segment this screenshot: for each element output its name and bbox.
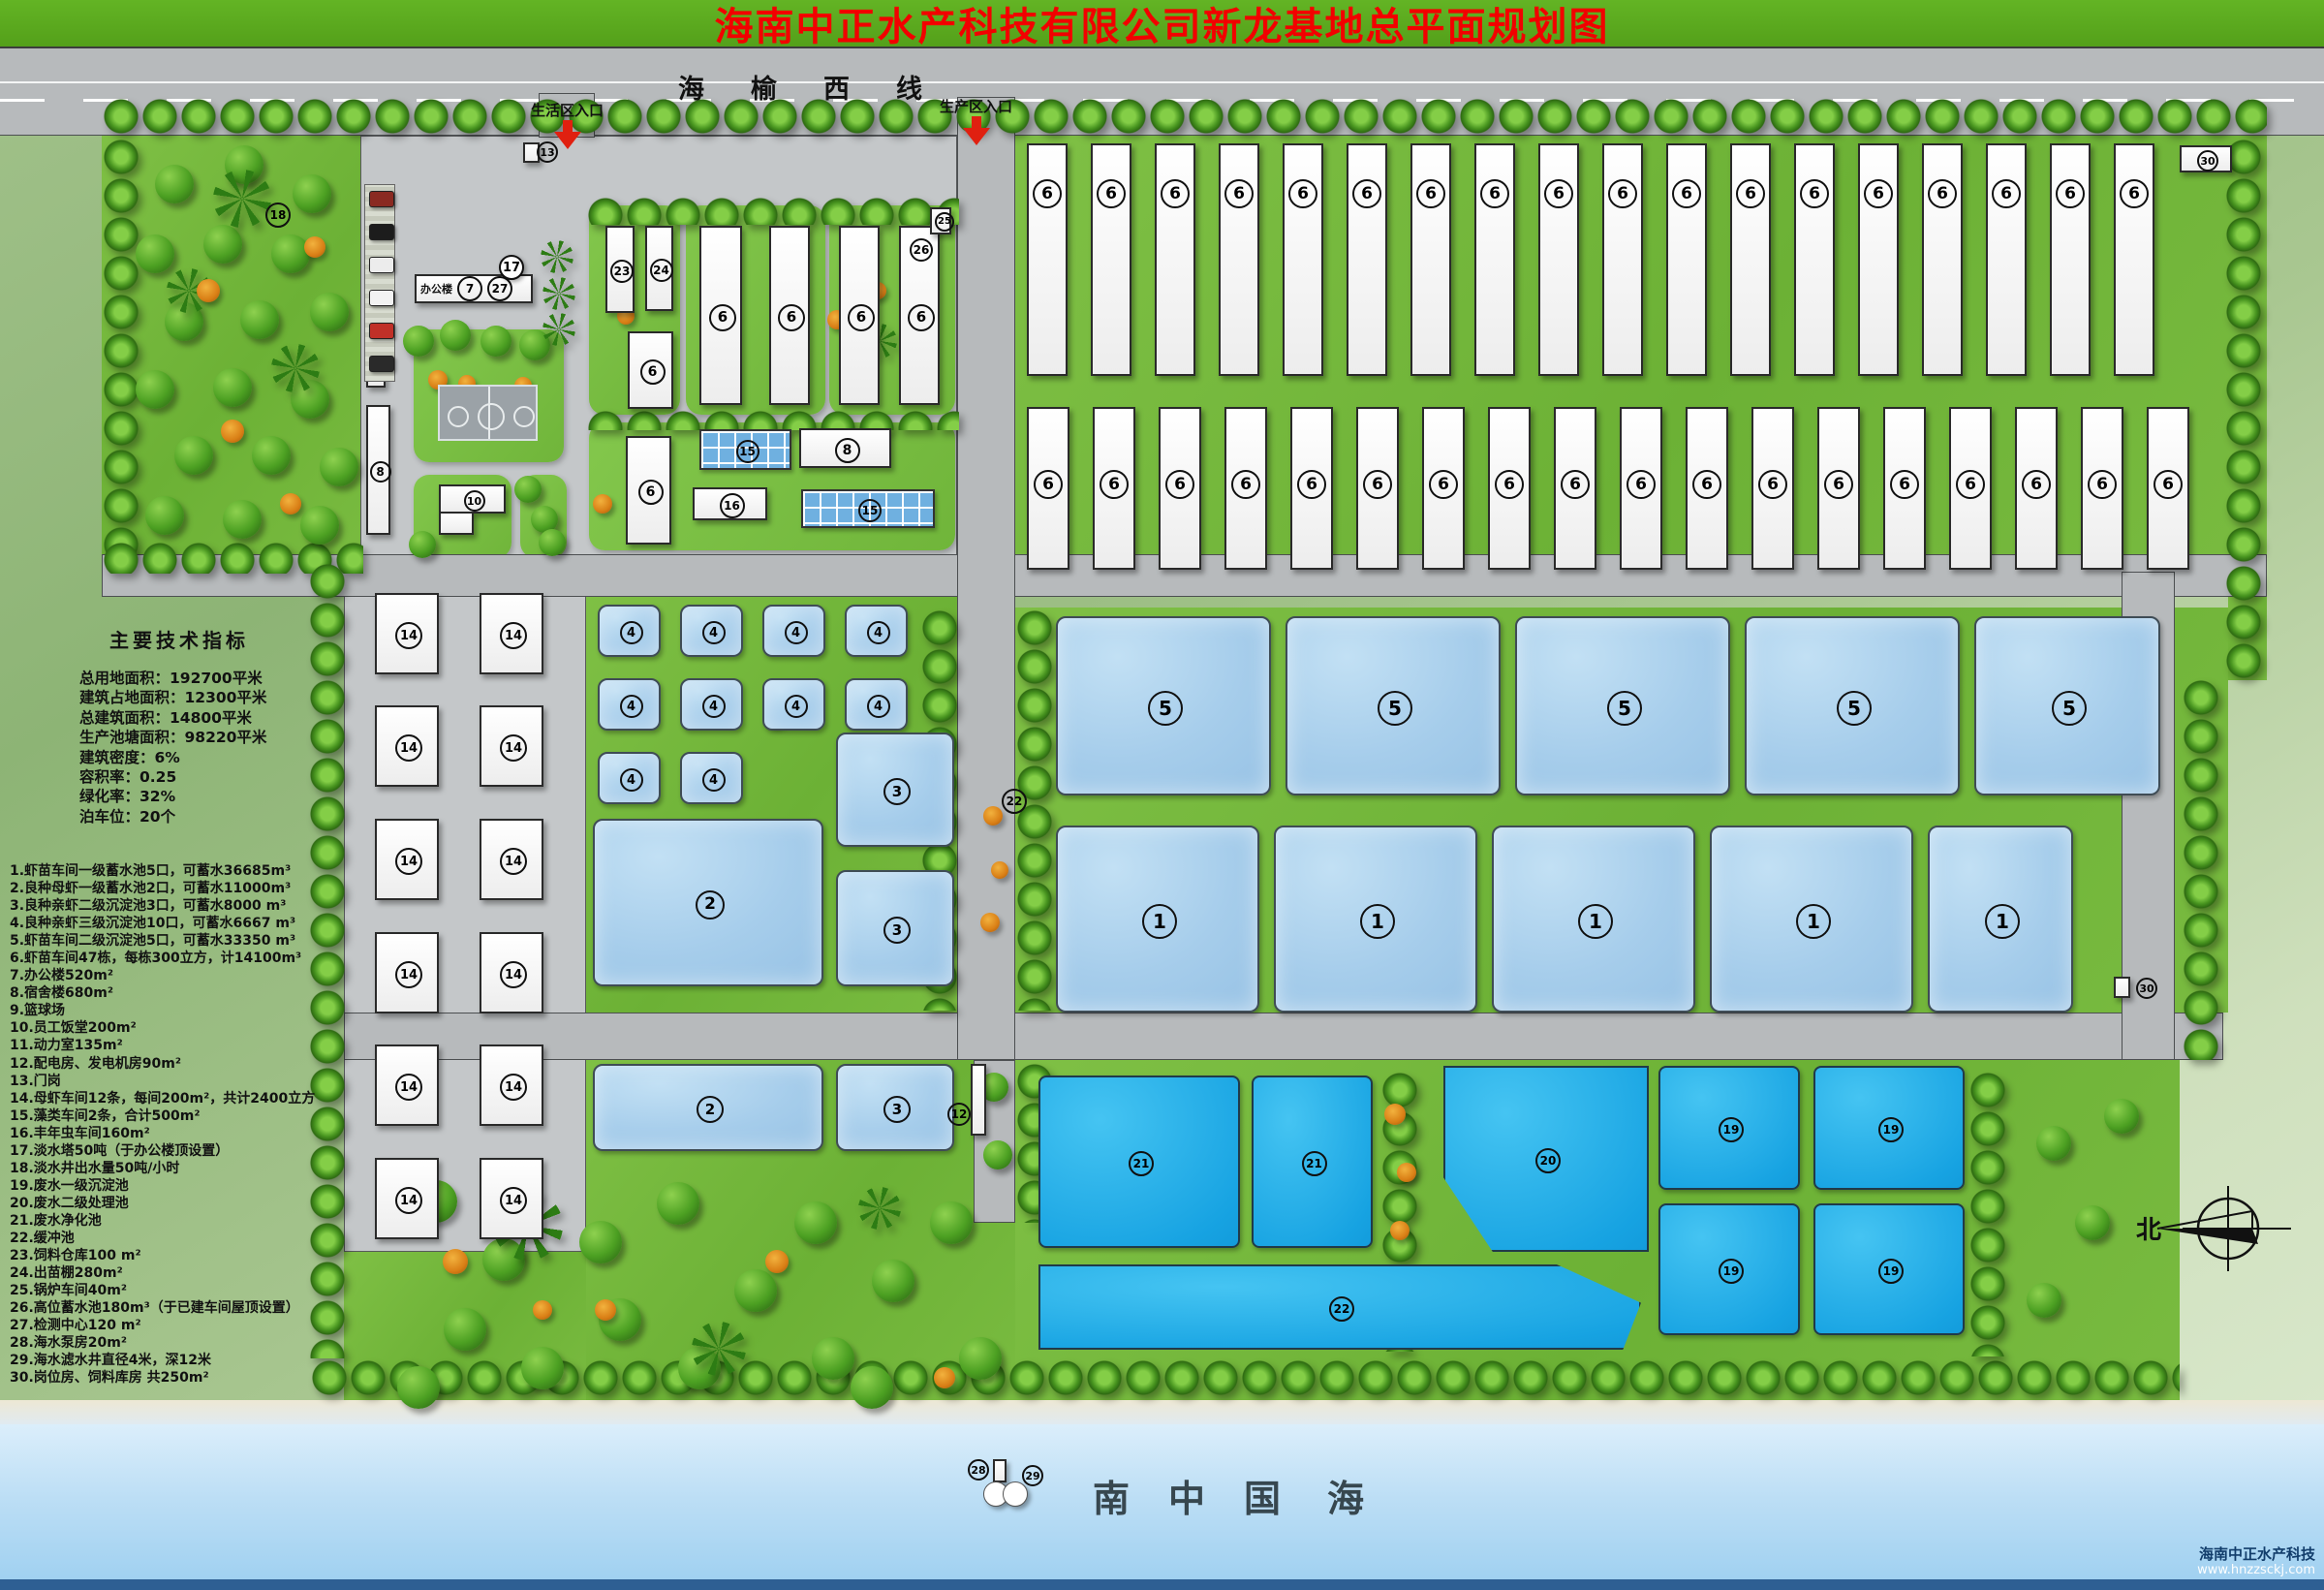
entrance-arrow-icon (563, 120, 573, 132)
parked-car (369, 290, 394, 306)
circled-label-3: 3 (883, 1096, 911, 1123)
circled-label-4: 4 (785, 621, 808, 644)
pond-22: 22 (1038, 1264, 1641, 1350)
orange-shrub (983, 806, 1003, 826)
circled-label-4: 4 (702, 621, 726, 644)
palm-tree (858, 1187, 901, 1230)
pond-5: 5 (1974, 616, 2160, 795)
hatchery-shed (1091, 143, 1131, 376)
pond-4: 4 (845, 678, 908, 731)
pond-20: 20 (1443, 1066, 1649, 1252)
hatchery-shed (2114, 143, 2154, 376)
pond-4: 4 (598, 752, 661, 804)
tree-bush (271, 234, 310, 273)
tree-bush (403, 326, 434, 357)
pond-3: 3 (836, 870, 954, 986)
circled-label-22: 22 (1329, 1296, 1354, 1322)
mother-shrimp-workshop: 14 (480, 819, 543, 900)
circled-label-28: 28 (968, 1459, 989, 1481)
tree-bush (145, 496, 184, 535)
circled-label-6: 6 (2022, 470, 2051, 499)
mother-shrimp-workshop: 14 (375, 819, 439, 900)
legend-item: 21.废水净化池 (10, 1212, 315, 1230)
building: 6 (839, 226, 880, 405)
circled-label-6: 6 (1363, 470, 1392, 499)
compass-north-icon: 北 (2136, 1184, 2296, 1273)
pond-4: 4 (762, 605, 825, 657)
court-center-circle (478, 403, 505, 430)
palm-tree (542, 313, 575, 346)
circled-label-18: 18 (265, 203, 291, 228)
building: 10 (439, 484, 506, 514)
legend-item: 24.出苗棚280m² (10, 1264, 315, 1282)
circled-label-4: 4 (620, 768, 643, 792)
legend-item: 22.缓冲池 (10, 1230, 315, 1247)
parked-car (369, 257, 394, 273)
building (439, 512, 474, 535)
pond-5: 5 (1056, 616, 1271, 795)
orange-shrub (197, 279, 220, 302)
circled-label-16: 16 (720, 493, 745, 518)
building (2114, 977, 2130, 998)
legend-item: 28.海水泵房20m² (10, 1334, 315, 1352)
tree-bush (514, 476, 542, 503)
hatchery-shed (1666, 143, 1707, 376)
circled-label-19: 19 (1719, 1117, 1744, 1142)
circled-label-6: 6 (1928, 179, 1957, 208)
circled-label-19: 19 (1878, 1259, 1904, 1284)
pond-4: 4 (680, 752, 743, 804)
orange-shrub (443, 1249, 468, 1274)
orange-shrub (304, 236, 325, 258)
building: 8 (366, 405, 390, 535)
building: 8 (799, 428, 891, 468)
building: 23 (605, 226, 635, 313)
circled-label-6: 6 (1692, 470, 1721, 499)
circled-label-23: 23 (610, 260, 634, 283)
hatchery-shed (1410, 143, 1451, 376)
circled-label-4: 4 (702, 695, 726, 718)
tree-row (310, 1356, 2180, 1400)
circled-label-14: 14 (500, 1074, 527, 1101)
legend-item: 19.废水一级沉淀池 (10, 1177, 315, 1195)
circled-label-10: 10 (464, 490, 485, 512)
building: 24 (645, 226, 673, 311)
mother-shrimp-workshop: 14 (375, 1044, 439, 1126)
mother-shrimp-workshop: 14 (375, 705, 439, 787)
pond-1: 1 (1928, 826, 2073, 1013)
tree-bush (213, 368, 252, 407)
legend-item: 6.虾苗车间47栋，每栋300立方，计14100m³ (10, 950, 315, 967)
pond-2: 2 (593, 1064, 823, 1151)
circled-label-2: 2 (696, 890, 725, 920)
circled-label-4: 4 (702, 768, 726, 792)
circled-label-26: 26 (910, 238, 933, 262)
mother-shrimp-workshop: 14 (480, 1158, 543, 1239)
court-key-circle (513, 406, 535, 427)
orange-shrub (1384, 1104, 1406, 1125)
tree-bush (293, 174, 331, 213)
building: 6 (626, 436, 671, 545)
pond-4: 4 (680, 605, 743, 657)
tree-bush (397, 1366, 440, 1409)
circled-label-5: 5 (1378, 691, 1412, 726)
svg-text:北: 北 (2136, 1216, 2161, 1245)
mother-shrimp-workshop: 14 (480, 705, 543, 787)
circled-label-2: 2 (697, 1096, 724, 1123)
legend-item: 4.良种亲虾三级沉淀池10口，可蓄水6667 m³ (10, 915, 315, 932)
circled-label-6: 6 (1800, 179, 1829, 208)
circled-label-25: 25 (935, 212, 954, 232)
tech-indicator-line: 建筑密度：6% (79, 748, 266, 767)
circled-label-6: 6 (2056, 179, 2085, 208)
circled-label-6: 6 (1672, 179, 1701, 208)
tree-bush (734, 1269, 777, 1312)
circled-label-6: 6 (1100, 470, 1129, 499)
legend-item: 7.办公楼520m² (10, 967, 315, 984)
circled-label-4: 4 (867, 695, 890, 718)
site-plan-scene: 5555511111444444444433322212120191919192… (0, 0, 2324, 1590)
title-bar: 海南中正水产科技有限公司新龙基地总平面规划图 (0, 0, 2324, 47)
hatchery-shed (1538, 143, 1579, 376)
tree-bush (240, 300, 279, 339)
legend-item: 8.宿舍楼680m² (10, 984, 315, 1002)
entrance-arrow-icon (554, 132, 581, 149)
circled-label-6: 6 (1224, 179, 1254, 208)
circled-label-1: 1 (1578, 904, 1613, 939)
mother-shrimp-workshop: 14 (480, 593, 543, 674)
circled-label-12: 12 (947, 1103, 971, 1126)
legend-list: 1.虾苗车间一级蓄水池5口，可蓄水36685m³2.良种母虾一级蓄水池2口，可蓄… (10, 862, 315, 1387)
tech-indicators-list: 总用地面积：192700平米建筑占地面积：12300平米总建筑面积：14800平… (79, 669, 266, 826)
tree-row (586, 194, 959, 225)
pond-1: 1 (1274, 826, 1477, 1013)
hatchery-shed (2050, 143, 2091, 376)
pond-3: 3 (836, 733, 954, 847)
tree-bush (320, 448, 358, 486)
circled-label-6: 6 (1561, 470, 1590, 499)
watermark-url: www.hnzzsckj.com (2112, 1563, 2315, 1577)
basketball-court (438, 385, 538, 441)
circled-label-30: 30 (2197, 150, 2218, 171)
pond-4: 4 (762, 678, 825, 731)
circled-label-6: 6 (1758, 470, 1787, 499)
circled-label-14: 14 (395, 961, 422, 988)
hatchery-shed (1986, 143, 2027, 376)
legend-item: 1.虾苗车间一级蓄水池5口，可蓄水36685m³ (10, 862, 315, 880)
map-canvas: 5555511111444444444433322212120191919192… (0, 0, 2324, 1590)
circled-label-5: 5 (1837, 691, 1872, 726)
tree-bush (579, 1221, 622, 1263)
hatchery-shed (1922, 143, 1963, 376)
legend-item: 29.海水滤水井直径4米，深12米 (10, 1352, 315, 1369)
circled-label-6: 6 (640, 359, 666, 385)
circled-label-27: 27 (487, 276, 512, 301)
circled-label-6: 6 (2088, 470, 2117, 499)
tree-bush (2075, 1205, 2110, 1240)
circled-label-5: 5 (1607, 691, 1642, 726)
pond-4: 4 (598, 605, 661, 657)
pond-5: 5 (1286, 616, 1501, 795)
circled-label-21: 21 (1129, 1151, 1154, 1176)
pond-19: 19 (1813, 1066, 1965, 1190)
circled-label-6: 6 (2154, 470, 2183, 499)
circled-label-3: 3 (883, 778, 911, 805)
tree-bush (223, 500, 262, 539)
circled-label-29: 29 (1022, 1465, 1043, 1486)
hatchery-shed (1219, 143, 1259, 376)
orange-shrub (280, 493, 301, 514)
tech-indicator-line: 生产池塘面积：98220平米 (79, 728, 266, 747)
circled-label-6: 6 (1956, 470, 1985, 499)
tree-bush (983, 1140, 1012, 1169)
circled-label-22: 22 (1002, 789, 1027, 814)
tech-indicator-line: 总用地面积：192700平米 (79, 669, 266, 688)
algae-pond-15: 15 (801, 489, 935, 528)
circled-label-4: 4 (620, 621, 643, 644)
legend-item: 17.淡水塔50吨（于办公楼顶设置） (10, 1142, 315, 1160)
legend-item: 18.淡水井出水量50吨/小时 (10, 1160, 315, 1177)
circled-label-1: 1 (1142, 904, 1177, 939)
hatchery-shed (1155, 143, 1195, 376)
circled-label-6: 6 (1495, 470, 1524, 499)
mother-shrimp-workshop: 14 (480, 1044, 543, 1126)
circled-label-21: 21 (1302, 1151, 1327, 1176)
circled-label-15: 15 (736, 440, 759, 463)
tree-bush (444, 1308, 486, 1351)
building (993, 1459, 1007, 1482)
circled-label-6: 6 (1890, 470, 1919, 499)
pond-4: 4 (845, 605, 908, 657)
tree-bush (2027, 1283, 2061, 1318)
building: 6 (628, 331, 673, 409)
legend-item: 26.高位蓄水池180m³（于已建车间屋顶设置） (10, 1299, 315, 1317)
circled-label-6: 6 (1165, 470, 1194, 499)
water-tower-label-17: 17 (499, 255, 524, 280)
filter-well (1003, 1481, 1028, 1507)
tree-bush (794, 1201, 837, 1244)
page-title: 海南中正水产科技有限公司新龙基地总平面规划图 (715, 0, 1610, 51)
palm-tree (692, 1322, 746, 1376)
mother-shrimp-workshop: 14 (480, 932, 543, 1013)
hatchery-shed (1283, 143, 1323, 376)
pond-19: 19 (1658, 1203, 1800, 1335)
pond-19: 19 (1658, 1066, 1800, 1190)
circled-label-6: 6 (1864, 179, 1893, 208)
parked-car (369, 356, 394, 372)
circled-label-14: 14 (500, 622, 527, 649)
palm-tree (542, 277, 575, 310)
legend-item: 27.检测中心120 m² (10, 1317, 315, 1334)
parked-car (369, 191, 394, 207)
tree-bush (959, 1337, 1002, 1380)
circled-label-14: 14 (500, 961, 527, 988)
pond-21: 21 (1252, 1076, 1373, 1248)
orange-shrub (593, 494, 612, 514)
tech-indicator-line: 容积率：0.25 (79, 767, 266, 787)
legend-item: 13.门岗 (10, 1073, 315, 1090)
legend-item: 23.饲料仓库100 m² (10, 1247, 315, 1264)
tree-bush (136, 234, 174, 273)
watermark-company: 海南中正水产科技 (2112, 1546, 2315, 1563)
tree-bush (930, 1201, 973, 1244)
legend-item: 3.良种亲虾二级沉淀池3口，可蓄水8000 m³ (10, 897, 315, 915)
orange-shrub (980, 913, 1000, 932)
office-label: 办公楼 (420, 281, 452, 296)
tree-row (2224, 138, 2267, 680)
circled-label-14: 14 (395, 622, 422, 649)
circled-label-6: 6 (1627, 470, 1656, 499)
legend-item: 20.废水二级处理池 (10, 1195, 315, 1212)
building: 16 (693, 487, 767, 520)
circled-label-6: 6 (1736, 179, 1765, 208)
tree-row (1968, 1071, 2005, 1356)
life-area-entrance: 生活区入口 (531, 100, 604, 149)
circled-label-30: 30 (2136, 978, 2157, 999)
tree-bush (2104, 1099, 2139, 1134)
circled-label-5: 5 (2052, 691, 2087, 726)
circled-label-6: 6 (1288, 179, 1317, 208)
palm-tree (213, 170, 271, 228)
production-area-entrance: 生产区入口 (940, 96, 1012, 145)
pond-1: 1 (1056, 826, 1259, 1013)
tree-row (2182, 678, 2224, 1060)
orange-shrub (533, 1300, 552, 1320)
legend-item: 16.丰年虫车间160m² (10, 1125, 315, 1142)
circled-label-6: 6 (1608, 179, 1637, 208)
circled-label-6: 6 (1352, 179, 1381, 208)
entrance-arrow-icon (972, 116, 981, 128)
tree-bush (539, 529, 566, 556)
circled-label-6: 6 (1429, 470, 1458, 499)
mother-shrimp-workshop: 14 (375, 1158, 439, 1239)
circled-label-1: 1 (1985, 904, 2020, 939)
tech-indicator-line: 建筑占地面积：12300平米 (79, 688, 266, 707)
mother-shrimp-workshop: 14 (375, 593, 439, 674)
algae-pond-15: 15 (699, 429, 791, 470)
hatchery-shed (1858, 143, 1899, 376)
circled-label-6: 6 (1992, 179, 2021, 208)
tree-bush (300, 506, 339, 545)
pond-21: 21 (1038, 1076, 1240, 1248)
circled-label-8: 8 (370, 461, 391, 483)
hatchery-shed (1474, 143, 1515, 376)
circled-label-6: 6 (1824, 470, 1853, 499)
palm-tree (541, 240, 573, 273)
circled-label-4: 4 (867, 621, 890, 644)
tree-bush (409, 531, 436, 558)
legend-item: 10.员工饭堂200m² (10, 1019, 315, 1037)
circled-label-6: 6 (778, 304, 805, 331)
hatchery-shed (1794, 143, 1835, 376)
legend-item: 9.篮球场 (10, 1002, 315, 1019)
circled-label-6: 6 (2120, 179, 2149, 208)
legend-item: 14.母虾车间12条，每间200m²，共计2400立方 (10, 1090, 315, 1107)
parked-car (369, 323, 394, 339)
hatchery-shed (1602, 143, 1643, 376)
orange-shrub (221, 420, 244, 443)
palm-tree (271, 344, 320, 392)
circled-label-5: 5 (1148, 691, 1183, 726)
circled-label-6: 6 (1161, 179, 1190, 208)
legend-item: 12.配电房、发电机房90m² (10, 1055, 315, 1073)
pond-3: 3 (836, 1064, 954, 1151)
tech-indicators-header: 主要技术指标 (109, 625, 249, 653)
pond-4: 4 (598, 678, 661, 731)
tree-bush (136, 370, 174, 409)
circled-label-6: 6 (1033, 179, 1062, 208)
tree-bush (155, 165, 194, 203)
legend-item: 2.良种母虾一级蓄水池2口，可蓄水11000m³ (10, 880, 315, 897)
entrance-arrow-icon (963, 128, 990, 145)
hatchery-shed (1027, 143, 1068, 376)
orange-shrub (1397, 1163, 1416, 1182)
mother-shrimp-workshop: 14 (375, 932, 439, 1013)
tree-row (102, 138, 142, 564)
circled-label-20: 20 (1535, 1148, 1561, 1173)
orange-shrub (765, 1250, 789, 1273)
circled-label-6: 6 (848, 304, 875, 331)
circled-label-6: 6 (908, 304, 935, 331)
legend-item: 5.虾苗车间二级沉淀池5口，可蓄水33350 m³ (10, 932, 315, 950)
tree-bush (310, 293, 349, 331)
parked-car (369, 224, 394, 240)
legend-item: 30.岗位房、饲料库房 共250m² (10, 1369, 315, 1387)
building: 30 (2180, 145, 2232, 172)
circled-label-6: 6 (1480, 179, 1509, 208)
watermark: 海南中正水产科技 www.hnzzsckj.com (2112, 1546, 2315, 1577)
tech-indicator-line: 绿化率：32% (79, 787, 266, 806)
circled-label-6: 6 (1097, 179, 1126, 208)
circled-label-19: 19 (1719, 1259, 1744, 1284)
circled-label-7: 7 (457, 276, 482, 301)
tree-row (102, 95, 2267, 138)
entrance-label: 生活区入口 (531, 100, 604, 120)
court-key-circle (448, 406, 469, 427)
legend-item: 11.动力室135m² (10, 1037, 315, 1054)
tree-bush (872, 1260, 914, 1302)
hatchery-shed (1730, 143, 1771, 376)
pond-2: 2 (593, 819, 823, 986)
circled-label-6: 6 (1416, 179, 1445, 208)
circled-label-14: 14 (395, 734, 422, 762)
circled-label-6: 6 (638, 480, 664, 505)
tree-bush (2036, 1126, 2071, 1161)
orange-shrub (991, 861, 1008, 879)
road-name: 海榆西线 (678, 68, 969, 106)
circled-label-3: 3 (883, 917, 911, 944)
circled-label-8: 8 (835, 438, 860, 463)
legend-item: 25.锅炉车间40m² (10, 1282, 315, 1299)
hatchery-shed (1347, 143, 1387, 376)
building: 6 (699, 226, 742, 405)
building: 6 (769, 226, 810, 405)
circled-label-14: 14 (500, 848, 527, 875)
circled-label-14: 14 (500, 1187, 527, 1214)
circled-label-6: 6 (1297, 470, 1326, 499)
tree-bush (440, 320, 471, 351)
pond-5: 5 (1745, 616, 1960, 795)
circled-label-1: 1 (1360, 904, 1395, 939)
circled-label-14: 14 (395, 1074, 422, 1101)
tree-row (586, 407, 959, 430)
internal-road (344, 1013, 2223, 1060)
tree-bush (657, 1182, 699, 1225)
tree-bush (252, 436, 291, 475)
tree-bush (480, 326, 511, 357)
pond-1: 1 (1710, 826, 1913, 1013)
parking-strip (364, 184, 395, 382)
